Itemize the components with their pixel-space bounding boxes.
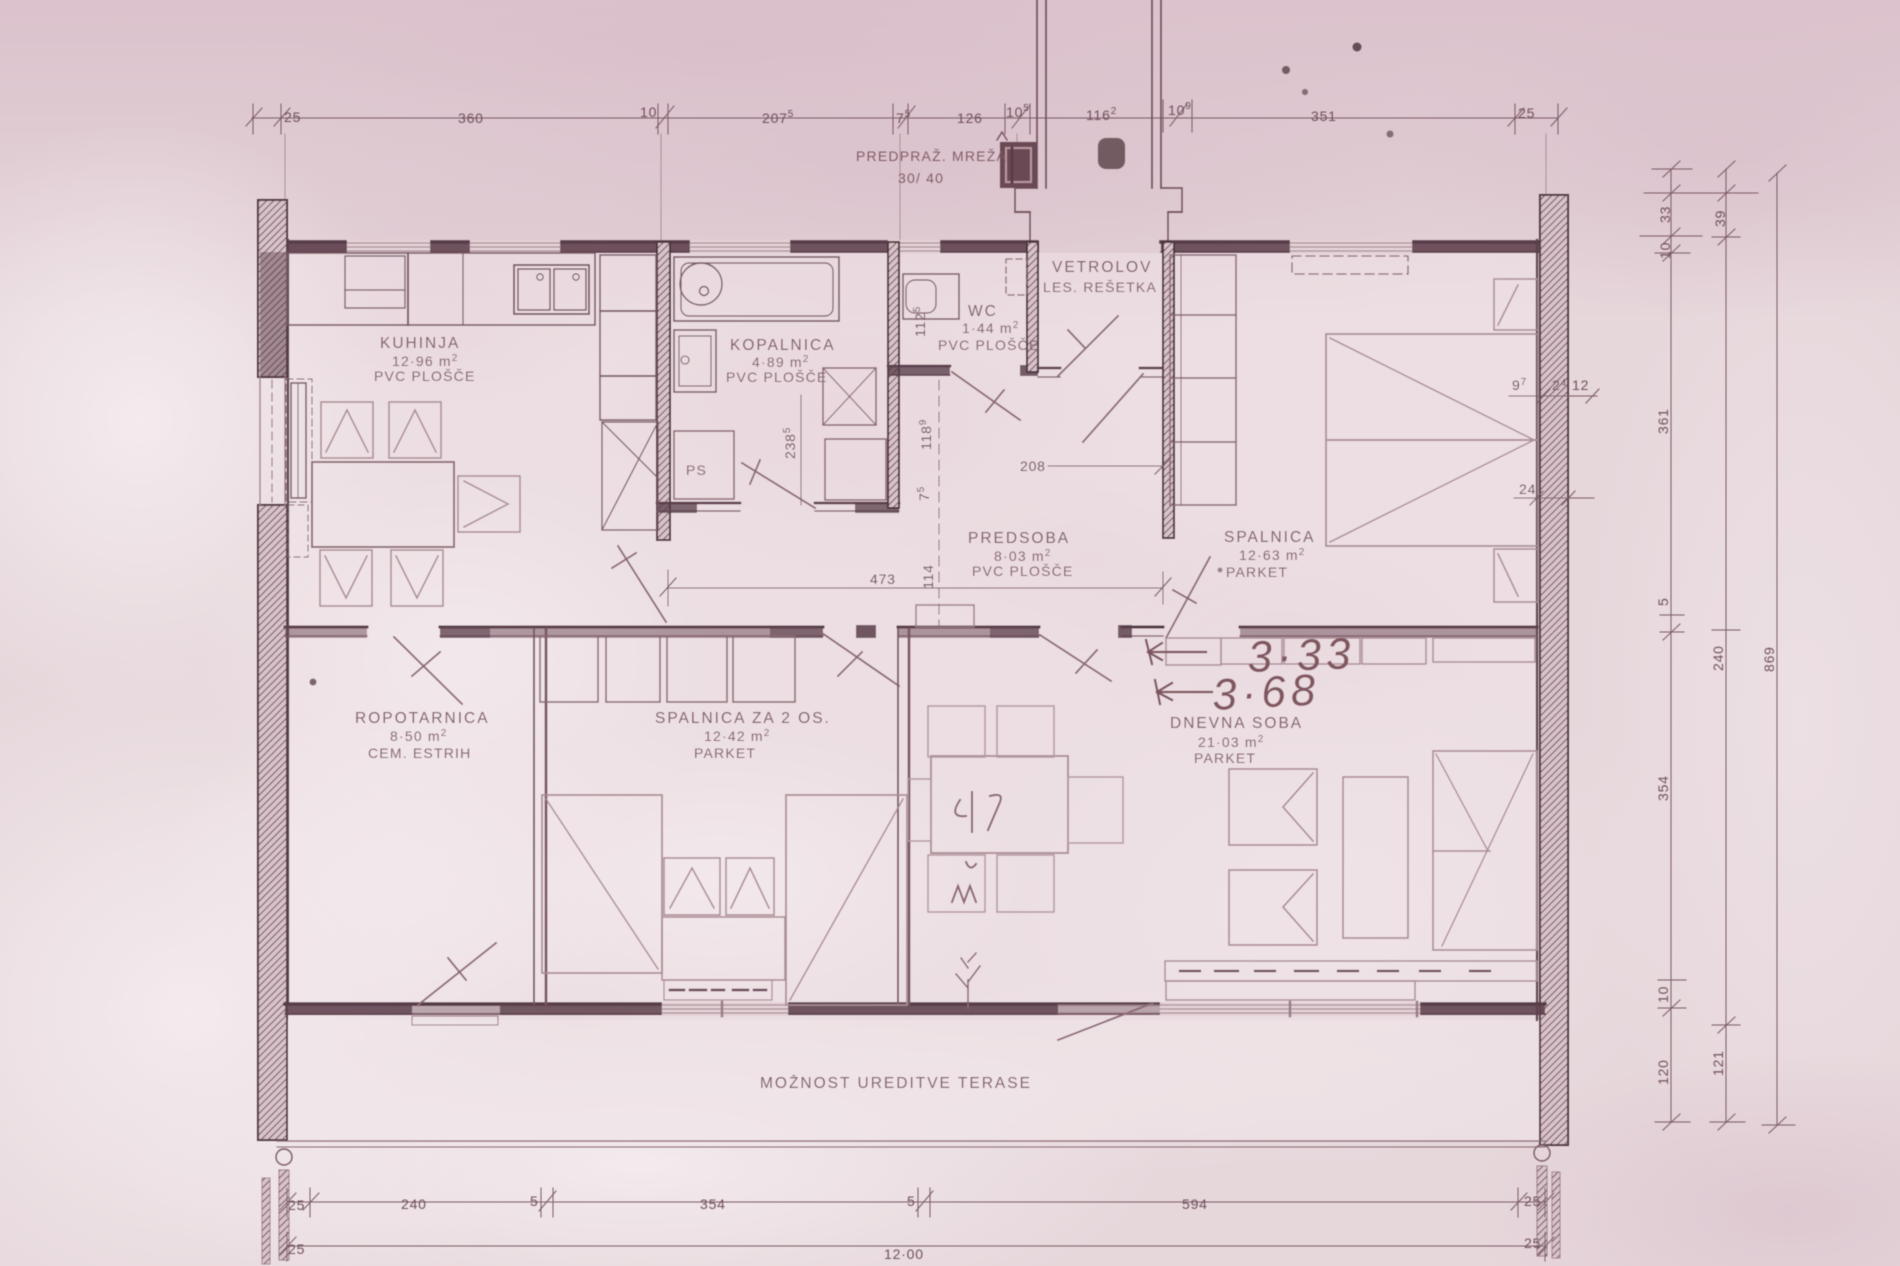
svg-text:25: 25 xyxy=(1524,1193,1541,1209)
svg-text:PREDPRAŽ. MREŽA: PREDPRAŽ. MREŽA xyxy=(856,148,1007,164)
svg-text:12·63 m2: 12·63 m2 xyxy=(1239,547,1306,563)
svg-text:LES. REŠETKA: LES. REŠETKA xyxy=(1043,279,1157,295)
svg-text:594: 594 xyxy=(1182,1196,1208,1212)
svg-text:WC: WC xyxy=(968,303,998,320)
svg-text:354: 354 xyxy=(700,1196,726,1212)
svg-text:25: 25 xyxy=(288,1197,305,1213)
svg-text:PARKET: PARKET xyxy=(694,745,756,761)
svg-text:4·89 m2: 4·89 m2 xyxy=(752,354,810,370)
svg-text:8·03 m2: 8·03 m2 xyxy=(994,548,1052,564)
svg-text:25: 25 xyxy=(288,1241,305,1257)
svg-text:240: 240 xyxy=(401,1196,427,1212)
svg-text:10: 10 xyxy=(640,104,657,120)
svg-text:361: 361 xyxy=(1655,408,1671,434)
svg-text:24: 24 xyxy=(1519,481,1536,497)
svg-text:208: 208 xyxy=(1020,458,1046,474)
svg-text:SPALNICA: SPALNICA xyxy=(1224,529,1316,546)
svg-text:10: 10 xyxy=(1655,986,1671,1003)
svg-text:5: 5 xyxy=(1655,597,1671,606)
svg-text:PS: PS xyxy=(686,462,707,478)
svg-text:5: 5 xyxy=(907,1193,916,1209)
svg-text:21·03 m2: 21·03 m2 xyxy=(1198,734,1265,750)
svg-text:12·42 m2: 12·42 m2 xyxy=(704,728,771,744)
svg-text:KOPALNICA: KOPALNICA xyxy=(730,337,836,354)
svg-text:39: 39 xyxy=(1712,210,1728,227)
svg-text:12: 12 xyxy=(1572,377,1589,393)
svg-text:VETROLOV: VETROLOV xyxy=(1052,259,1152,276)
svg-text:360: 360 xyxy=(458,110,484,126)
svg-text:25: 25 xyxy=(1524,1235,1541,1251)
svg-text:126: 126 xyxy=(957,110,983,126)
svg-text:1·44 m2: 1·44 m2 xyxy=(962,320,1020,336)
svg-text:PARKET: PARKET xyxy=(1226,564,1288,580)
svg-text:PVC PLOŠČE: PVC PLOŠČE xyxy=(938,337,1039,353)
svg-text:240: 240 xyxy=(1710,645,1726,671)
svg-text:PVC PLOŠČE: PVC PLOŠČE xyxy=(726,369,827,385)
svg-text:ROPOTARNICA: ROPOTARNICA xyxy=(355,710,490,727)
svg-text:10: 10 xyxy=(1657,242,1673,259)
svg-text:354: 354 xyxy=(1655,775,1671,801)
svg-text:PVC PLOŠČE: PVC PLOŠČE xyxy=(374,368,475,384)
svg-text:869: 869 xyxy=(1761,646,1777,672)
svg-text:25: 25 xyxy=(284,109,301,125)
svg-text:12·96 m2: 12·96 m2 xyxy=(392,353,459,369)
svg-text:SPALNICA ZA 2 OS.: SPALNICA ZA 2 OS. xyxy=(655,710,831,727)
svg-text:3·68: 3·68 xyxy=(1211,665,1321,720)
svg-text:473: 473 xyxy=(870,571,896,587)
svg-text:MOŽNOST UREDITVE TERASE: MOŽNOST UREDITVE TERASE xyxy=(760,1075,1032,1092)
svg-text:12·00: 12·00 xyxy=(884,1246,924,1262)
svg-text:CEM. ESTRIH: CEM. ESTRIH xyxy=(368,745,471,761)
svg-text:120: 120 xyxy=(1655,1059,1671,1085)
svg-text:PARKET: PARKET xyxy=(1194,750,1256,766)
svg-text:33: 33 xyxy=(1657,206,1673,223)
svg-text:121: 121 xyxy=(1710,1050,1726,1076)
svg-text:PREDSOBA: PREDSOBA xyxy=(968,530,1070,547)
svg-text:114: 114 xyxy=(920,564,936,589)
svg-text:30/ 40: 30/ 40 xyxy=(898,170,944,186)
svg-text:5: 5 xyxy=(530,1193,539,1209)
svg-text:8·50 m2: 8·50 m2 xyxy=(390,728,448,744)
svg-text:PVC PLOŠČE: PVC PLOŠČE xyxy=(972,563,1073,579)
svg-text:351: 351 xyxy=(1311,108,1337,124)
svg-text:KUHINJA: KUHINJA xyxy=(380,335,460,352)
svg-text:25: 25 xyxy=(1518,105,1535,121)
